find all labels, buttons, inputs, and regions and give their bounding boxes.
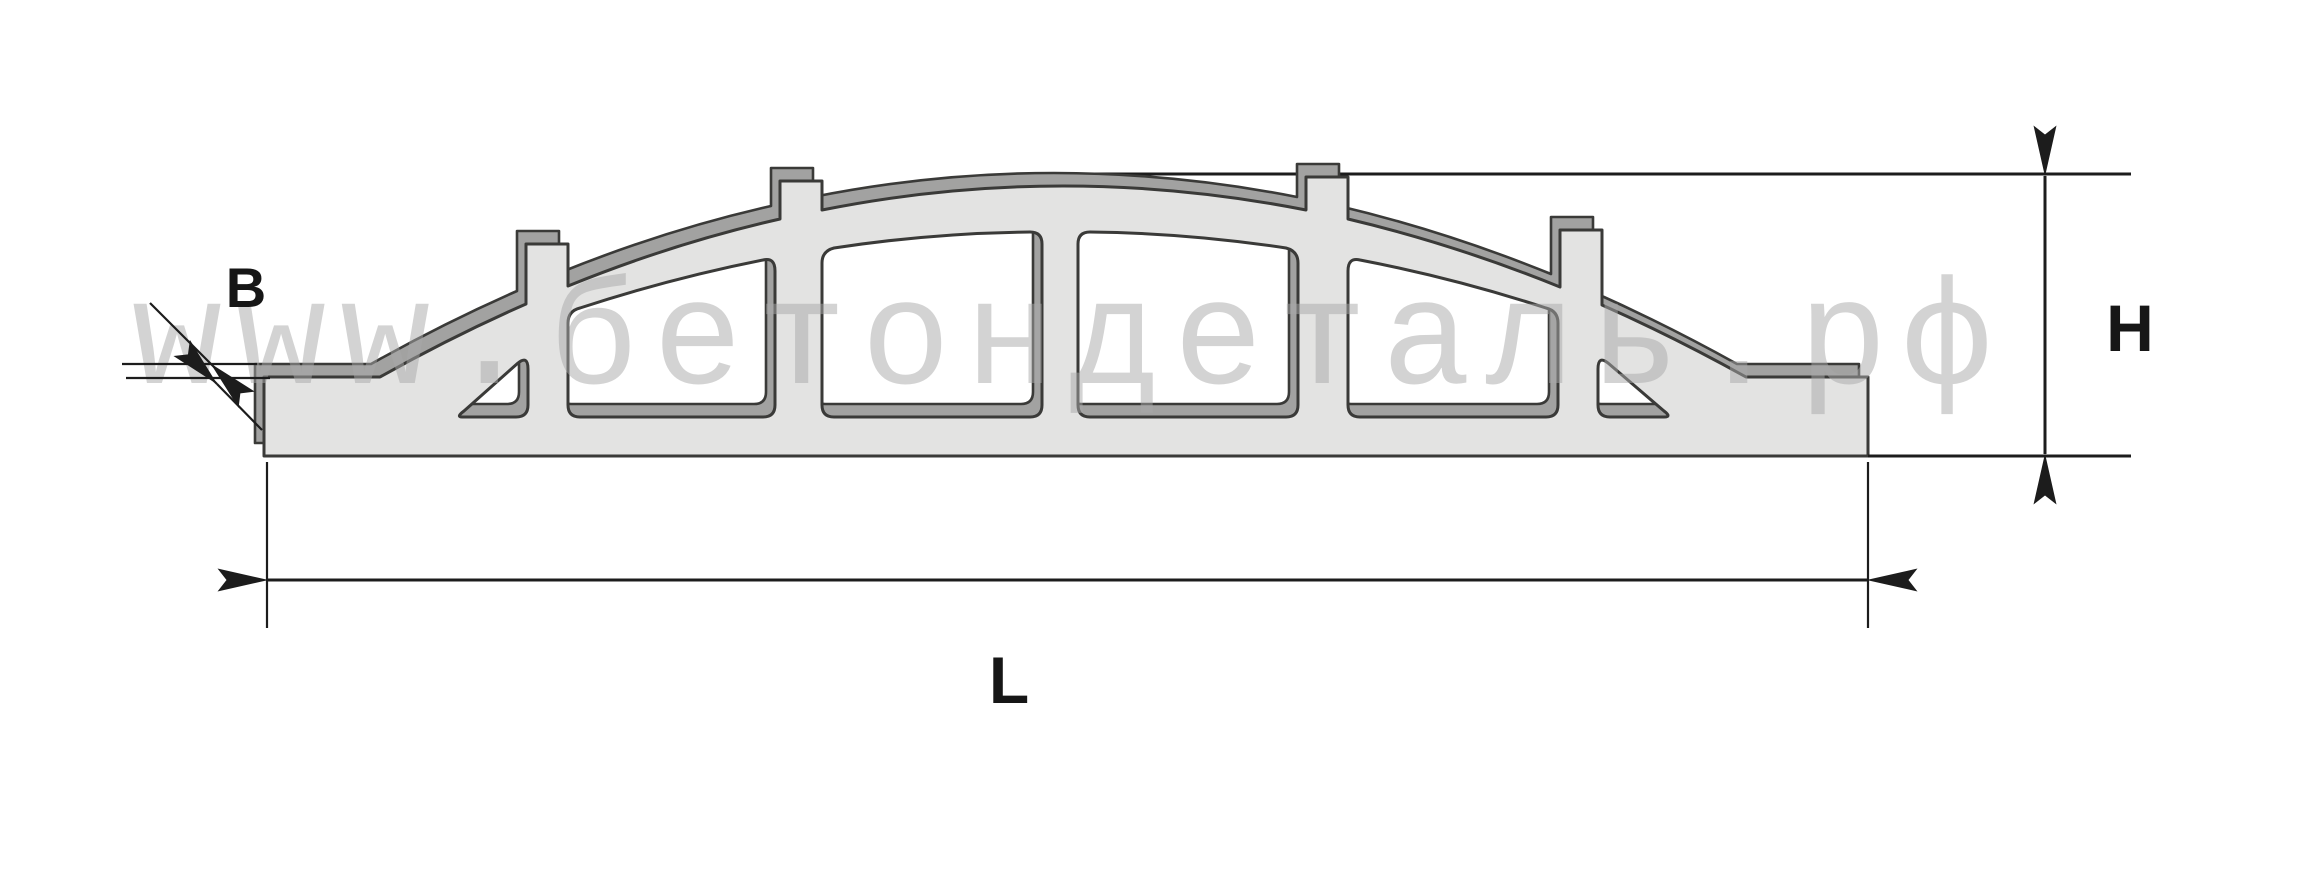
drawing-canvas: .outline-back{stroke:#3a3a38;} .outline-… bbox=[0, 0, 2302, 876]
dimension-b-label: B bbox=[226, 256, 266, 319]
dimension-h-label: H bbox=[2106, 291, 2154, 365]
dimension-l-label: L bbox=[989, 643, 1029, 717]
dimension-l: L bbox=[267, 462, 1868, 717]
fence-panel-diagram: .outline-back{stroke:#3a3a38;} .outline-… bbox=[0, 0, 2302, 876]
